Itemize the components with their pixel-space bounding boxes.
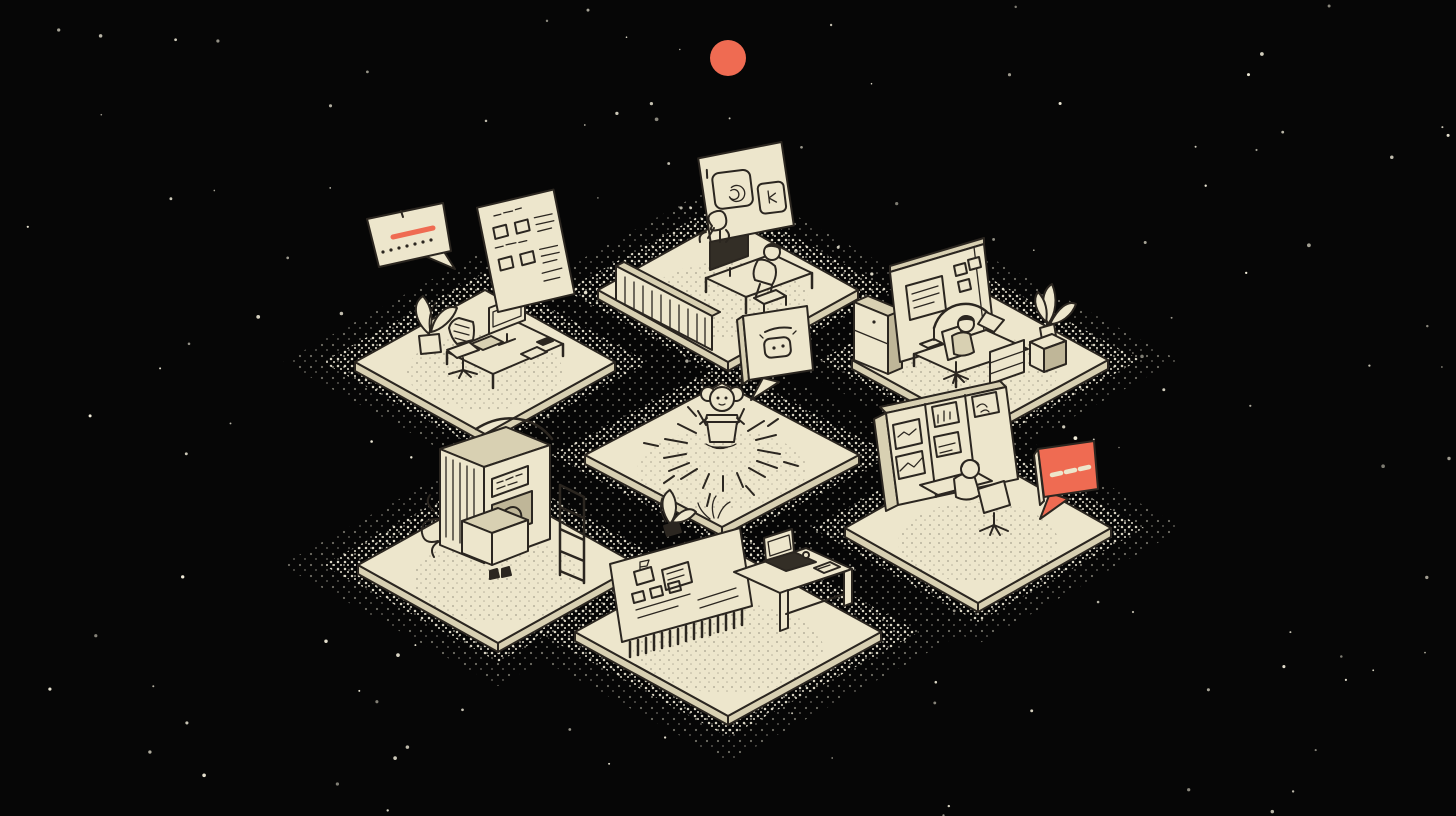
- star: [895, 202, 898, 205]
- star: [1381, 464, 1385, 468]
- star: [57, 28, 60, 31]
- star: [729, 117, 731, 119]
- mug: [803, 552, 809, 558]
- sticky-note: [954, 263, 967, 276]
- star: [871, 83, 873, 85]
- star: [366, 71, 369, 74]
- star: [485, 120, 488, 123]
- star: [664, 736, 666, 738]
- star: [1162, 388, 1165, 391]
- star: [1447, 457, 1450, 460]
- star: [159, 367, 161, 369]
- star: [1247, 73, 1250, 76]
- star: [213, 190, 215, 192]
- star: [1207, 688, 1210, 691]
- star: [1441, 366, 1443, 368]
- star: [152, 685, 154, 687]
- star: [679, 49, 680, 50]
- star: [169, 197, 172, 200]
- star: [188, 343, 191, 346]
- star: [100, 114, 102, 116]
- star: [830, 24, 832, 26]
- star: [94, 634, 97, 637]
- star: [1307, 243, 1311, 247]
- boot: [502, 567, 511, 577]
- star: [329, 187, 331, 189]
- star: [933, 701, 936, 704]
- star: [650, 102, 653, 105]
- star: [329, 104, 332, 107]
- star: [1059, 102, 1062, 105]
- star: [1033, 249, 1035, 251]
- star: [461, 708, 464, 711]
- star: [587, 9, 590, 12]
- star: [1372, 669, 1374, 671]
- star: [370, 440, 373, 443]
- star: [1008, 73, 1011, 76]
- star: [1118, 447, 1120, 449]
- star: [1315, 749, 1317, 751]
- star: [216, 39, 219, 42]
- star: [1074, 436, 1078, 440]
- star: [992, 238, 995, 241]
- star: [1328, 5, 1331, 8]
- star: [626, 36, 628, 38]
- star: [1195, 146, 1197, 148]
- star: [387, 809, 389, 811]
- star: [1132, 611, 1134, 613]
- star: [935, 681, 938, 684]
- star: [1260, 52, 1264, 56]
- star: [1255, 149, 1257, 151]
- isometric-scene: [0, 0, 1456, 816]
- star: [174, 38, 177, 41]
- star: [655, 117, 659, 121]
- star: [256, 315, 260, 319]
- boot: [490, 569, 499, 579]
- star: [1390, 155, 1394, 159]
- star: [1144, 241, 1147, 244]
- star: [48, 688, 51, 691]
- star: [831, 757, 833, 759]
- star: [1292, 790, 1294, 792]
- star: [396, 653, 400, 657]
- star: [608, 763, 610, 765]
- star: [1245, 272, 1247, 274]
- star: [230, 422, 232, 424]
- star: [340, 312, 344, 316]
- star: [667, 162, 670, 165]
- star: [27, 226, 29, 228]
- star: [336, 782, 339, 785]
- star: [615, 112, 618, 115]
- sticky-note: [958, 279, 971, 292]
- star: [414, 644, 416, 646]
- star: [584, 124, 586, 126]
- star: [185, 721, 188, 724]
- star: [1187, 788, 1190, 791]
- star: [568, 728, 571, 731]
- star: [1289, 631, 1291, 633]
- star: [410, 456, 412, 458]
- star: [1030, 709, 1033, 712]
- star: [393, 756, 397, 760]
- star: [800, 146, 803, 149]
- star: [1447, 134, 1450, 137]
- star: [375, 700, 378, 703]
- star: [148, 750, 151, 753]
- star: [202, 773, 206, 777]
- star: [181, 575, 184, 578]
- star: [1426, 325, 1428, 327]
- star: [89, 414, 92, 417]
- star: [1171, 317, 1173, 319]
- star: [1249, 405, 1251, 407]
- star: [1014, 6, 1016, 8]
- star: [1281, 131, 1284, 134]
- star: [1205, 185, 1207, 187]
- illustration-canvas: [0, 0, 1456, 816]
- star: [546, 20, 548, 22]
- star: [1282, 665, 1285, 668]
- star: [1441, 126, 1443, 128]
- star: [324, 639, 327, 642]
- star: [1425, 576, 1428, 579]
- star: [1340, 655, 1343, 658]
- star: [185, 452, 188, 455]
- star: [1062, 425, 1065, 428]
- star: [948, 805, 950, 807]
- star: [1368, 364, 1370, 366]
- star: [1097, 601, 1100, 604]
- star: [358, 690, 360, 692]
- star: [406, 745, 410, 749]
- sticky-note: [968, 257, 981, 270]
- star: [1271, 810, 1274, 813]
- star: [286, 257, 289, 260]
- red-sun: [710, 40, 746, 76]
- star: [99, 34, 103, 38]
- star: [1424, 652, 1426, 654]
- star: [1345, 679, 1347, 681]
- floating-whiteboard: [698, 142, 795, 243]
- star: [597, 197, 599, 199]
